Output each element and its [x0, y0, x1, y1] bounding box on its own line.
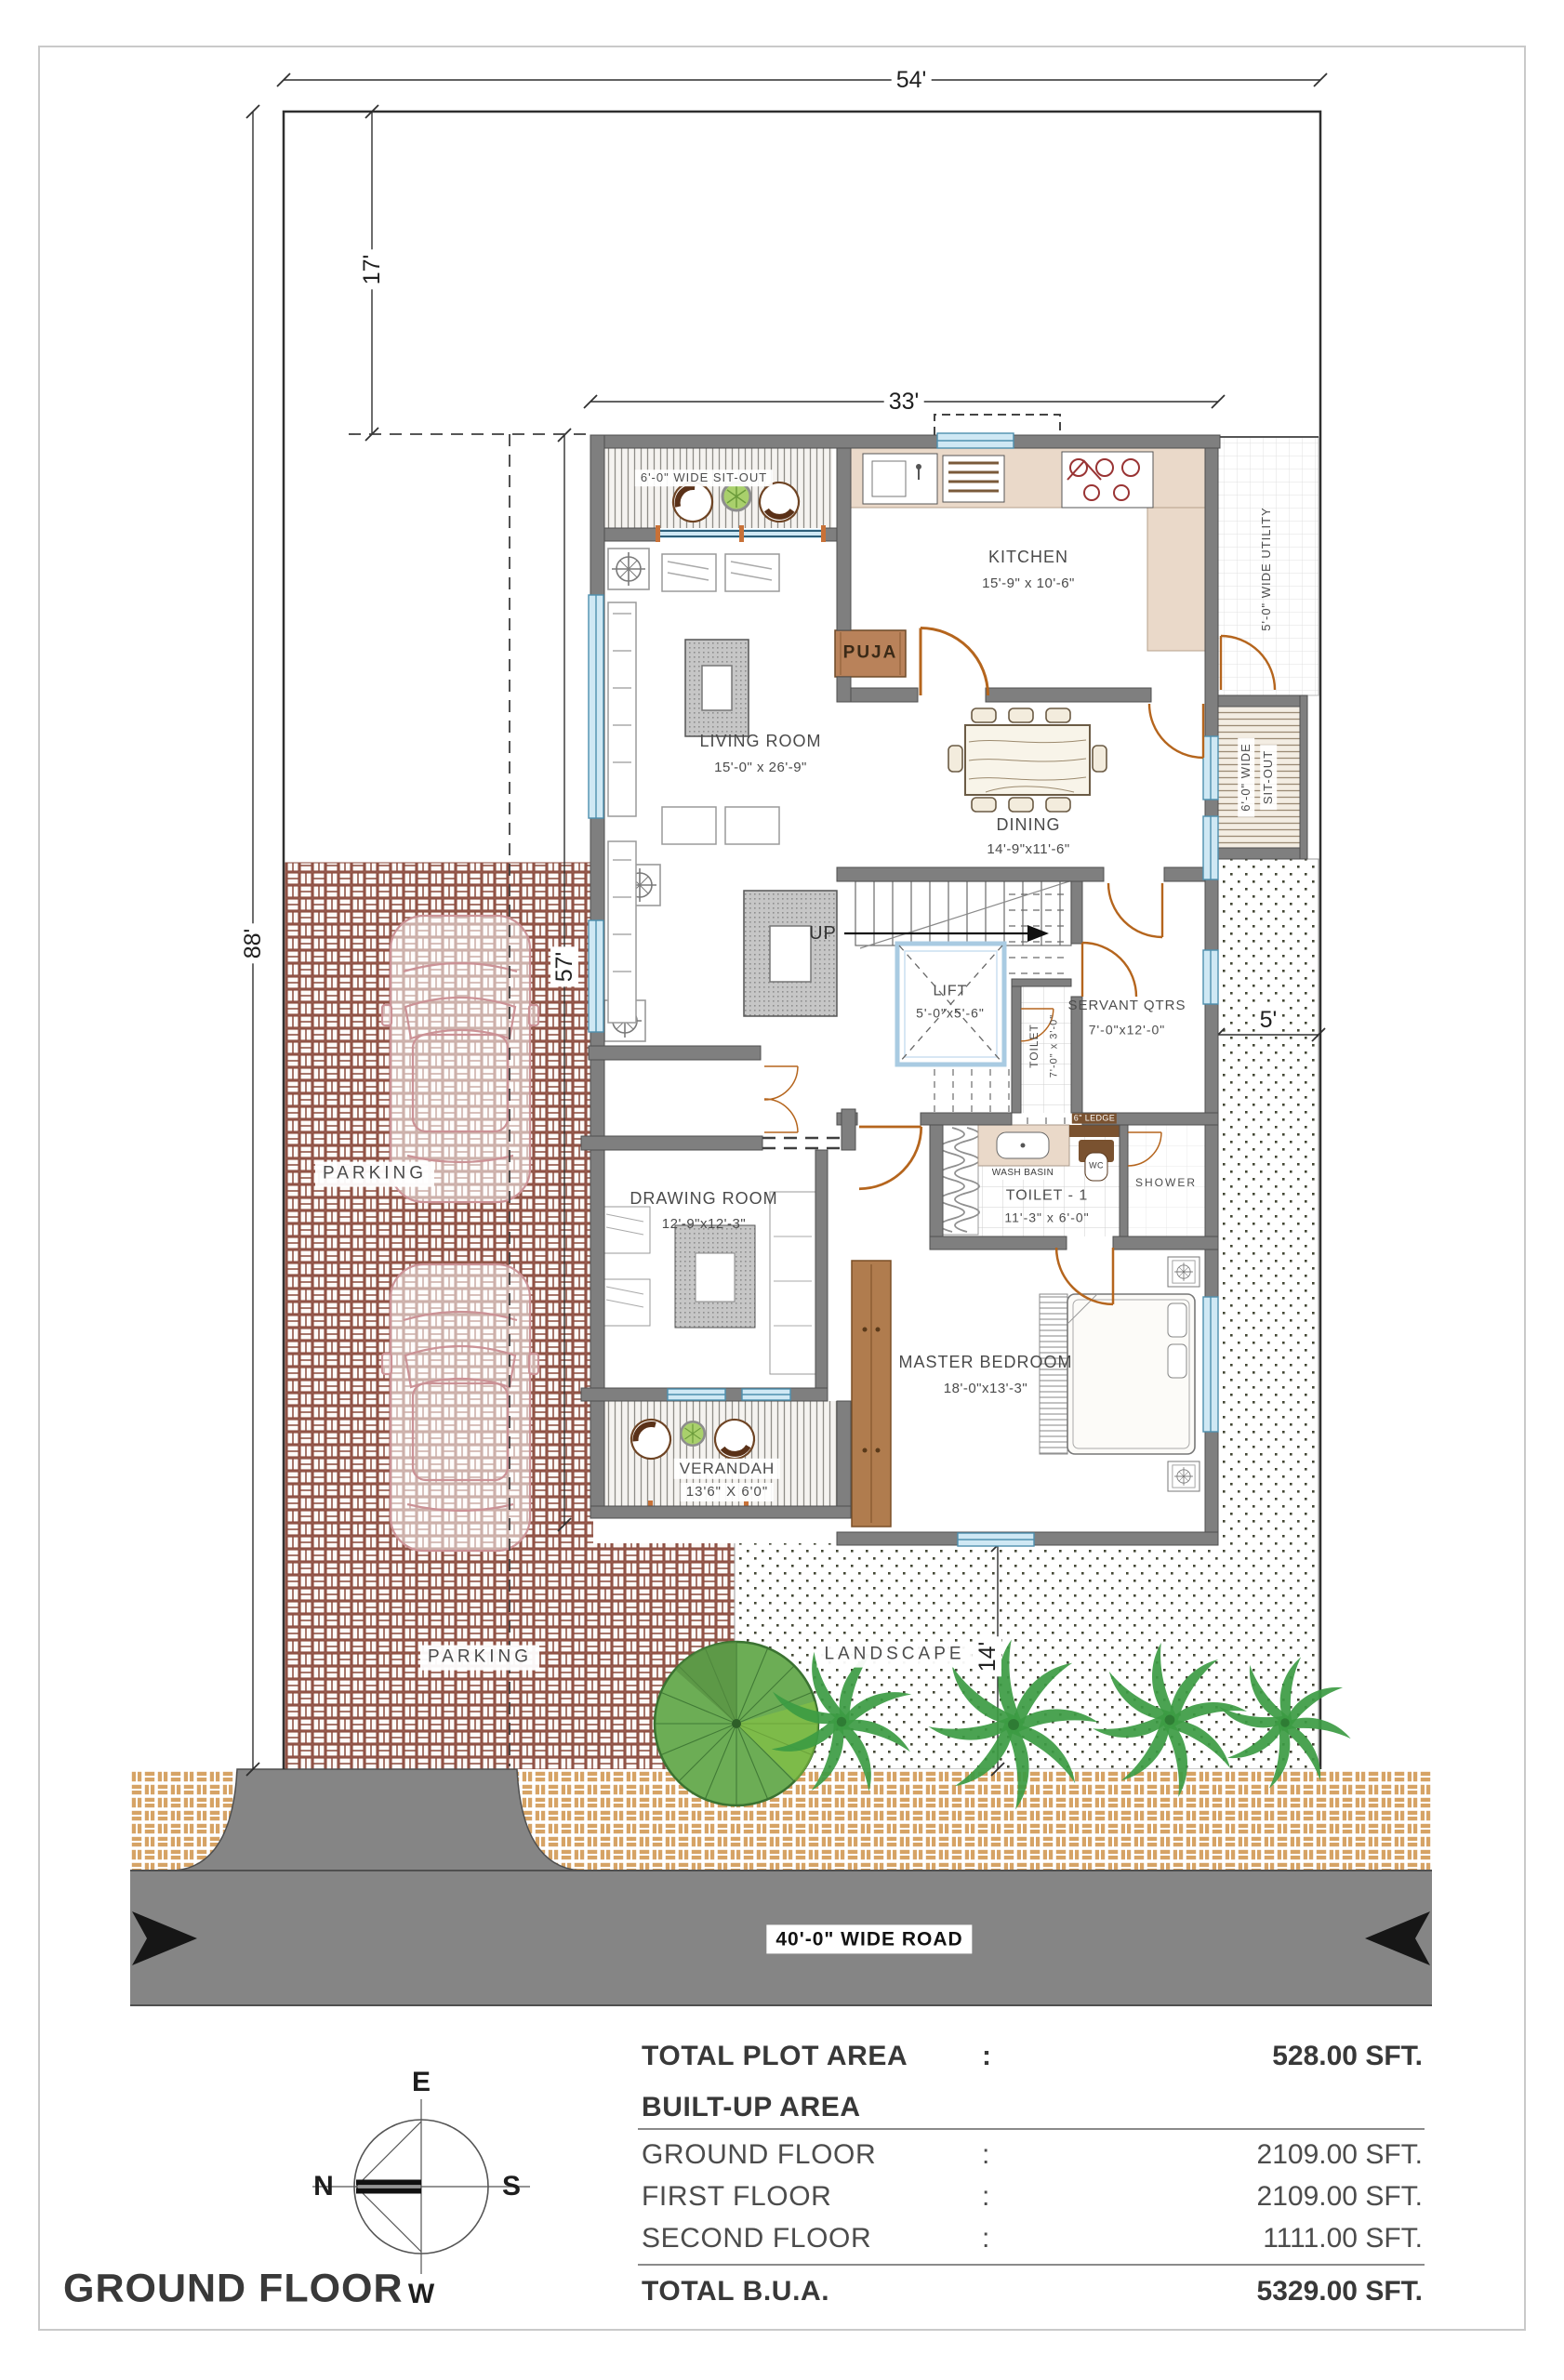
plot-area-value: 528.00 SFT. — [1272, 2041, 1423, 2072]
lift — [897, 944, 1004, 1064]
label-sitout-east-1: 6'-0" WIDE — [1238, 737, 1254, 816]
second-floor-value: 1111.00 SFT. — [1263, 2223, 1423, 2254]
total-bua-label: TOTAL B.U.A. — [642, 2276, 829, 2307]
label-ledge: 6" LEDGE — [1072, 1114, 1117, 1124]
fan-icon — [1173, 1465, 1195, 1487]
label-dining: DINING — [997, 815, 1061, 836]
plant-icon — [722, 483, 750, 510]
label-toilet1-size: 11'-3" x 6'-0" — [1004, 1210, 1089, 1226]
label-landscape: LANDSCAPE — [816, 1643, 972, 1668]
car-icon — [382, 916, 538, 1202]
label-lift-size: 5'-0"x5'-6" — [916, 1006, 985, 1022]
ground-floor-label: GROUND FLOOR — [642, 2139, 876, 2171]
label-master: MASTER BEDROOM — [898, 1353, 1072, 1373]
first-floor-value: 2109.00 SFT. — [1257, 2181, 1423, 2213]
compass-icon — [312, 2099, 530, 2274]
label-kitchen-size: 15'-9" x 10'-6" — [982, 575, 1075, 592]
compass-south: S — [502, 2170, 521, 2203]
plot-area-colon: : — [982, 2041, 991, 2072]
compass-west: W — [408, 2278, 434, 2311]
tree-icon — [655, 1642, 818, 1805]
label-drawing: DRAWING ROOM — [630, 1189, 777, 1210]
label-verandah: VERANDAH — [674, 1459, 780, 1479]
label-verandah-size: 13'6" X 6'0" — [681, 1483, 774, 1501]
label-toilet-small-size: 7'-0" x 3'-0" — [1048, 1014, 1060, 1078]
sitout-north — [604, 448, 837, 542]
label-living: LIVING ROOM — [699, 732, 821, 752]
label-sitout-north: 6'-0" WIDE SIT-OUT — [635, 469, 773, 486]
label-parking-upper: PARKING — [315, 1162, 434, 1187]
dim-plot-height: 88' — [239, 924, 267, 964]
label-living-size: 15'-0" x 26'-9" — [714, 760, 807, 776]
sitout-east-floor — [1218, 707, 1300, 848]
label-toilet-small: TOILET — [1027, 1024, 1040, 1068]
label-servant-size: 7'-0"x12'-0" — [1089, 1023, 1166, 1038]
label-drawing-size: 12'-9"x12'-3" — [662, 1216, 746, 1233]
first-floor-colon: : — [982, 2181, 989, 2213]
total-bua-value: 5329.00 SFT. — [1257, 2276, 1423, 2307]
compass-north: N — [313, 2170, 334, 2203]
label-utility: 5'-0" WIDE UTILITY — [1259, 507, 1274, 630]
second-floor-label: SECOND FLOOR — [642, 2223, 871, 2254]
label-road: 40'-0" WIDE ROAD — [766, 1924, 972, 1953]
label-toilet1: TOILET - 1 — [1006, 1186, 1089, 1204]
ledge — [1069, 1125, 1120, 1137]
bedside-runner — [1040, 1294, 1067, 1454]
first-floor-label: FIRST FLOOR — [642, 2181, 831, 2213]
dim-setback-top: 17' — [358, 250, 386, 290]
page-title: GROUND FLOOR — [63, 2267, 404, 2312]
plant-icon — [681, 1421, 705, 1446]
ground-floor-colon: : — [982, 2139, 989, 2171]
label-master-size: 18'-0"x13'-3" — [944, 1381, 1027, 1397]
fan-icon — [1173, 1261, 1195, 1283]
label-parking-lower: PARKING — [420, 1646, 539, 1671]
dim-building-width: 33' — [884, 388, 924, 416]
builtup-header: BUILT-UP AREA — [642, 2092, 861, 2123]
dim-east-side: 5' — [1255, 1006, 1282, 1034]
driveway — [175, 1769, 579, 1871]
dim-plot-width: 54' — [892, 66, 932, 94]
label-lift: LIFT — [934, 982, 968, 999]
label-wash-basin: WASH BASIN — [987, 1167, 1059, 1180]
label-kitchen: KITCHEN — [988, 548, 1068, 568]
floor-plan-page: 54' 17' 33' 88' 57' 5' 14' 6'-0" WIDE SI… — [0, 0, 1564, 2380]
dim-building-height: 57' — [550, 947, 578, 987]
ground-floor-value: 2109.00 SFT. — [1257, 2139, 1423, 2171]
label-dining-size: 14'-9"x11'-6" — [987, 841, 1069, 858]
plot-area-label: TOTAL PLOT AREA — [642, 2041, 908, 2072]
label-shower: SHOWER — [1135, 1176, 1197, 1189]
label-up: UP — [809, 922, 837, 945]
floor-plan-drawing — [0, 0, 1564, 2380]
label-puja: PUJA — [843, 643, 898, 665]
second-floor-colon: : — [982, 2223, 989, 2254]
label-sitout-east-2: SIT-OUT — [1260, 745, 1277, 810]
compass-east: E — [412, 2066, 431, 2099]
dim-south-setback: 14' — [974, 1637, 1001, 1677]
fan-icon — [608, 549, 649, 589]
label-servant: SERVANT QTRS — [1067, 998, 1186, 1014]
label-wc: WC — [1089, 1161, 1104, 1171]
car-icon — [382, 1264, 538, 1551]
